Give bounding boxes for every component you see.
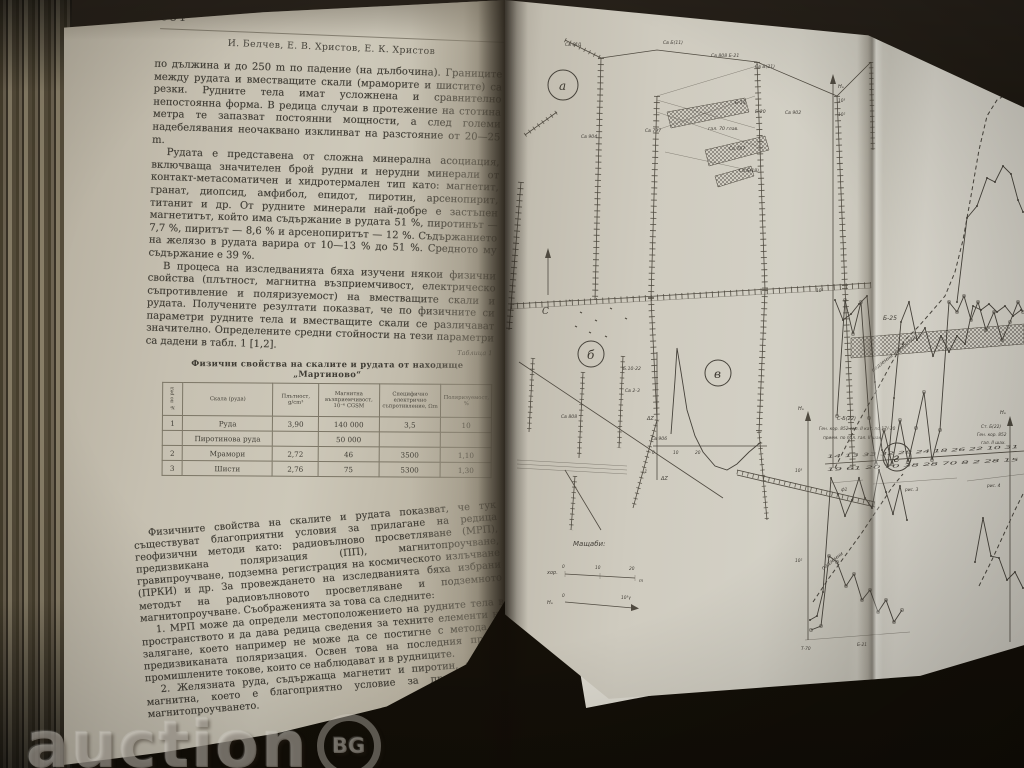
sketch-label: Б.10-22 xyxy=(623,366,641,372)
mine-plan-figure-a: а xyxy=(509,40,875,520)
col-header-density: Плътност, g/cm³ xyxy=(273,383,319,416)
col-header-susceptibility: Магнитна възприемчивост, 10⁻⁶ CGSM xyxy=(319,383,380,416)
book-photo: 384 И. Белчев, Е. В. Христов, Е. К. Хрис… xyxy=(0,0,1024,768)
rchart-note-3: гал. II шах. xyxy=(981,440,1006,446)
col-header-rock: Скала (руда) xyxy=(183,382,273,416)
watermark: auction BG xyxy=(26,714,381,768)
map-label: Св В(21) xyxy=(755,64,775,70)
scale-0: 0 xyxy=(562,564,565,570)
rchart-dashed xyxy=(979,494,1023,586)
col-header-no: № по ред xyxy=(162,382,182,415)
watermark-badge: BG xyxy=(317,714,381,768)
map-label: Св 904 xyxy=(581,134,597,140)
scale-field-max: 10³γ xyxy=(621,595,631,601)
survey-dots xyxy=(569,300,627,337)
gchart-axis-label: Нₐ xyxy=(798,406,804,412)
detail-sketch-figure-b: б Св 808 Б.10-22 Св 2-3 xyxy=(517,341,723,530)
scale-10: 10 xyxy=(595,565,601,571)
rchart-series xyxy=(975,518,1023,588)
map-label: Св 906 xyxy=(651,436,667,442)
profile-tick-2: 10² xyxy=(838,112,845,118)
north-label: С xyxy=(542,307,549,317)
scale-field-0: 0 xyxy=(562,593,565,599)
map-label: Св 902 xyxy=(785,110,801,116)
anomaly-curve-figure-v: в ΔZ 0 10 20 -1 ΔZ xyxy=(643,348,767,482)
bracket-label-2: рис. 3 xyxy=(904,487,919,493)
scale-unit: m xyxy=(639,579,643,584)
figure-a-label: а xyxy=(559,79,566,93)
curve-zero: 0 xyxy=(652,450,655,456)
sketch-label: Св 2-3 xyxy=(625,388,640,394)
gchart-tick-1: 10³ xyxy=(795,468,802,474)
gchart-note-1: С-Б(22) xyxy=(837,416,856,422)
right-foldout-page: а xyxy=(505,0,1024,768)
left-page: 384 И. Белчев, Е. В. Христов, Е. К. Хрис… xyxy=(64,0,506,768)
curve-dz-label-2: ΔZ xyxy=(660,476,668,482)
sketch-label: Св 808 xyxy=(561,414,577,420)
ore-band-label: Б-25 xyxy=(883,315,897,322)
figure-g-label: г xyxy=(893,451,899,465)
curve-dz-label: ΔZ xyxy=(646,416,654,422)
page-edges-shade xyxy=(0,0,72,768)
bracket-label-3: рис. 4 xyxy=(986,483,1001,489)
profile-series-hump xyxy=(957,166,1023,302)
scales-title: Мащаби: xyxy=(573,540,605,548)
profile-chart-figure-g: Нₐ 10³ 10² С-Б(22) Ген. кор. 852 гал. II… xyxy=(795,406,911,652)
rchart-note-1: Ст. Б(22) xyxy=(981,424,1001,430)
scale-hor-label: хор. xyxy=(546,570,558,576)
figures-drawing: а xyxy=(505,0,1024,768)
watermark-text: auction xyxy=(26,714,309,768)
profile-axis-label: Нₐ xyxy=(838,84,844,90)
map-label: Св 808 Б-21 xyxy=(711,53,739,59)
map-label: Св 787 xyxy=(729,146,745,152)
scale-20: 20 xyxy=(629,566,635,572)
book-gutter-shadow xyxy=(478,0,528,768)
map-label: Св Б(18) xyxy=(739,168,759,174)
scales-legend: Мащаби: хор. 0 10 20 m Нₐ 0 10³γ xyxy=(546,540,643,611)
gchart-tick-2: 10² xyxy=(795,558,802,564)
gchart-label-left: Т-70 xyxy=(801,646,811,652)
map-label: гал. 70 глав. xyxy=(708,126,739,132)
map-label: Б-20 xyxy=(755,109,766,115)
fold-crease xyxy=(857,0,883,768)
curve-x20: 20 xyxy=(695,450,701,456)
map-label: Св 610 xyxy=(565,42,581,48)
rchart-note-2: Ген. кор. 852 xyxy=(977,432,1007,438)
profile-tick-1: 10³ xyxy=(838,98,845,104)
curve-x10: 10 xyxy=(673,450,679,456)
figure-v-label: в xyxy=(714,367,721,381)
map-label: Б-19 xyxy=(735,100,746,106)
profile-tick-3: 10² xyxy=(816,288,823,294)
map-label: Св Б(11) xyxy=(663,40,683,46)
rchart-axis-label: Нₐ xyxy=(1000,410,1006,416)
map-label: Св 797 xyxy=(645,128,661,134)
figure-b-label: б xyxy=(587,348,595,362)
curve-neg1: -1 xyxy=(643,469,648,475)
scale-field-label: Нₐ xyxy=(547,600,553,606)
bracket-label-1: ф1 xyxy=(841,487,848,493)
